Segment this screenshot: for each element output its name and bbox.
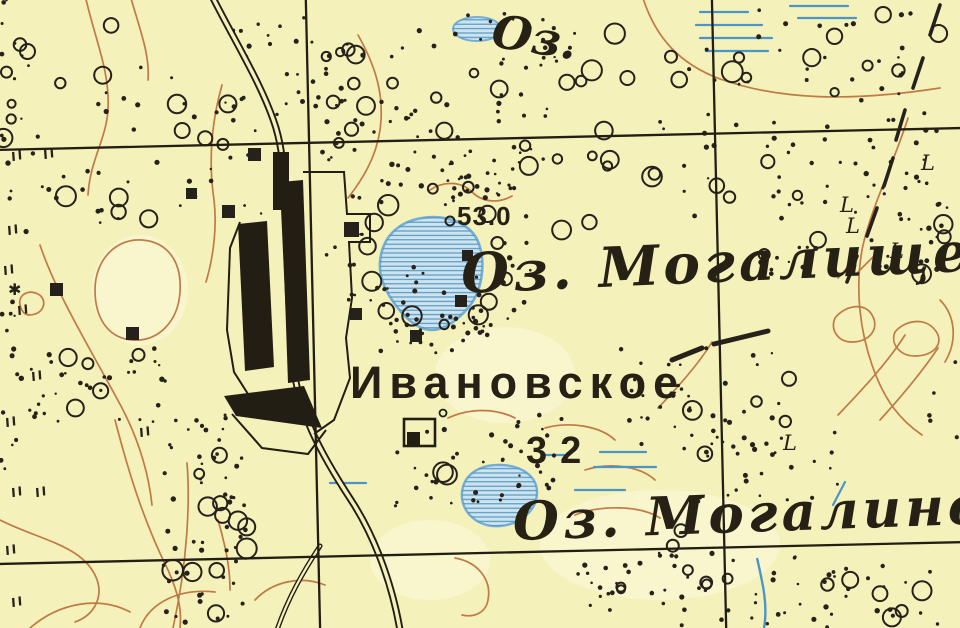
spot-height-32: 32 [526, 432, 594, 470]
village-ivanovskoye-label: Ивановское [350, 360, 685, 405]
lake-label-abbrev: Оз. [489, 8, 581, 67]
boundary-letter: L [782, 431, 797, 455]
topographic-map[interactable]: LLLLL ✱ Оз. 53.0 Оз. Могалище Ивановское… [0, 0, 960, 628]
boundary-letter: L [920, 151, 935, 175]
star-symbol: ✱ [8, 280, 21, 299]
lake-mogalino-label: Оз. Могалино [512, 479, 960, 549]
spot-height-53: 53.0 [457, 203, 512, 229]
